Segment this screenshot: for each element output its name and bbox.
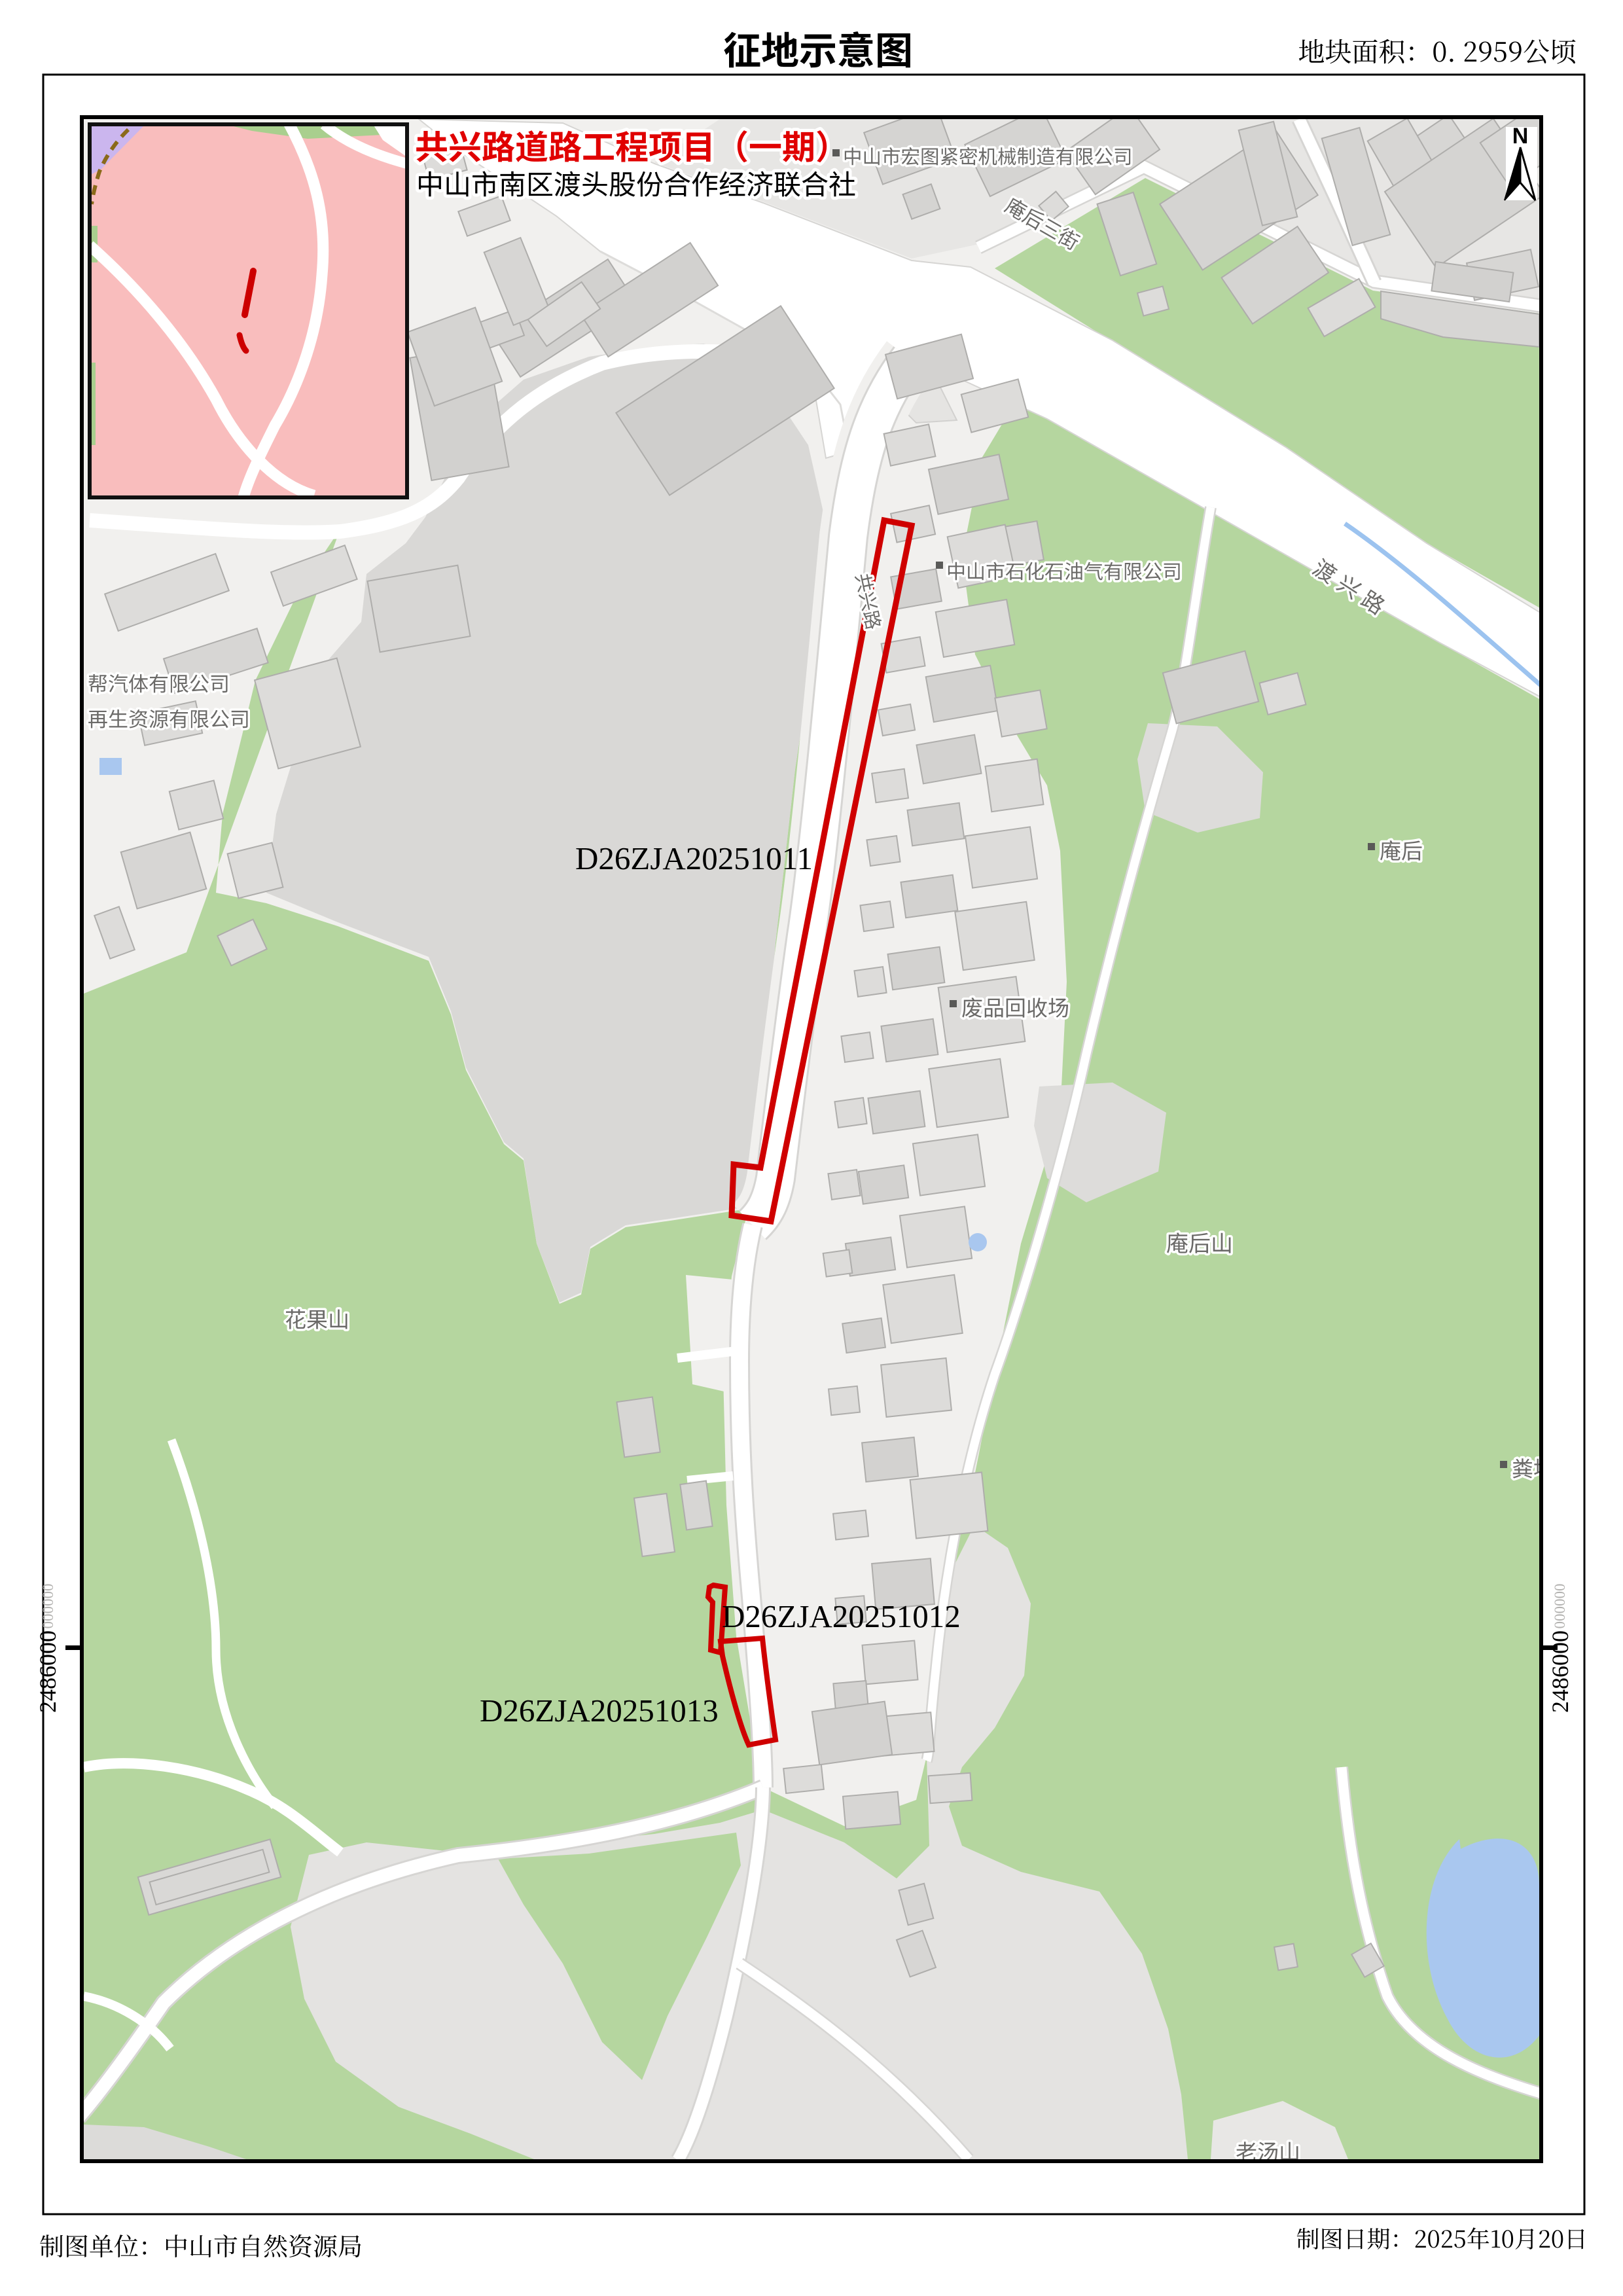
svg-text:000000: 000000: [1552, 1584, 1568, 1629]
svg-text:2486000: 2486000: [35, 1630, 61, 1713]
svg-text:D26ZJA20251013: D26ZJA20251013: [480, 1693, 719, 1729]
svg-text:2486000: 2486000: [1547, 1630, 1573, 1713]
svg-text:000000: 000000: [40, 1584, 56, 1629]
svg-text:D26ZJA20251012: D26ZJA20251012: [722, 1598, 961, 1634]
svg-text:D26ZJA20251011: D26ZJA20251011: [575, 840, 813, 876]
svg-text:N: N: [1512, 124, 1529, 149]
